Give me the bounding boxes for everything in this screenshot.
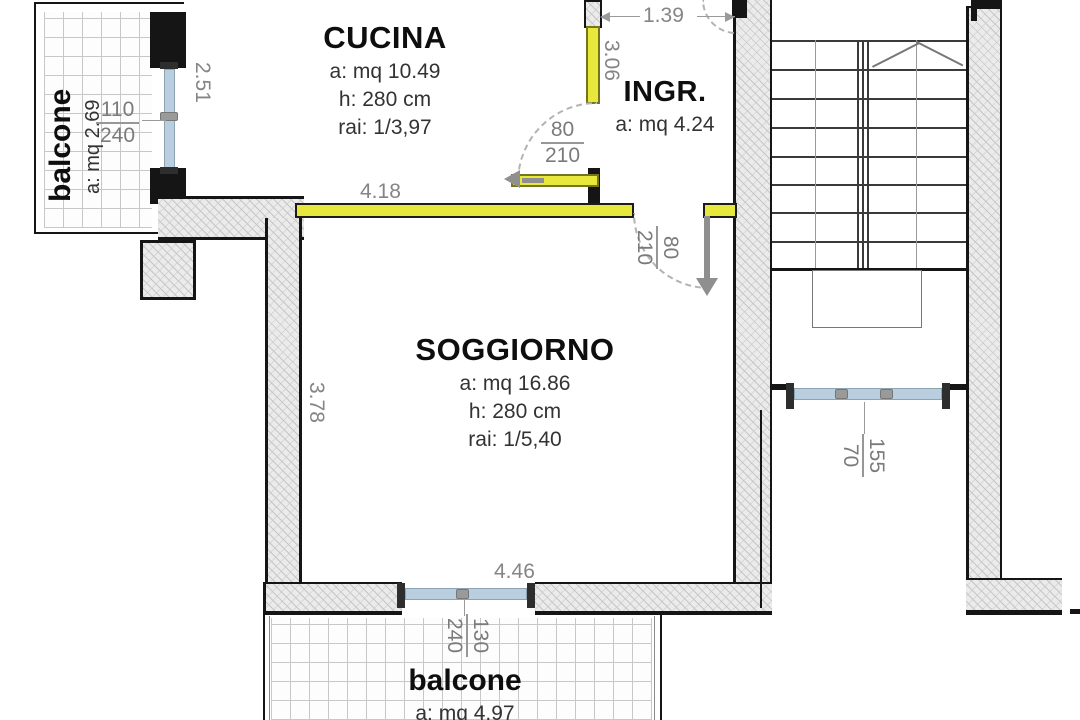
wall-stair-right-top-step (971, 9, 977, 21)
room-label-balcone-top: balcone (44, 89, 78, 202)
room-area: a: mq 4.24 (580, 113, 750, 137)
room-title: CUCINA (275, 20, 495, 56)
room-label-ingresso: INGR. a: mq 4.24 (580, 76, 750, 137)
stair-tread (772, 212, 966, 214)
leader-balcony-window (142, 120, 166, 121)
dim-entry-wall: 3.06 (599, 40, 623, 81)
stair-divider-line (867, 40, 869, 268)
stair-tread (772, 156, 966, 158)
stair-window-cap-right (942, 383, 950, 409)
wall-living-left (265, 218, 302, 584)
room-label-balcone-bottom: balcone (390, 664, 540, 698)
stair-tread (772, 69, 966, 71)
dim-living-window: 130240 (443, 614, 492, 657)
wall-kitchen-living-yellow (295, 203, 634, 218)
dim-kitchen-left: 2.51 (190, 62, 214, 103)
stair-tread (772, 241, 966, 243)
stair-flight-centerline (916, 40, 917, 268)
stair-divider-line (857, 40, 859, 268)
stair-tread (772, 127, 966, 129)
room-area-balcone-bottom: a: mq 4.97 (390, 702, 540, 720)
room-area: a: mq 16.86 (390, 372, 640, 396)
dim-arrow-left (600, 12, 610, 22)
dim-arrow-right (725, 12, 735, 22)
stair-window-cap-left (786, 383, 794, 409)
stair-break-line (916, 41, 963, 66)
room-label-soggiorno: SOGGIORNO a: mq 16.86 h: 280 cm rai: 1/5… (390, 332, 640, 452)
balcony-bottom-inner-line-left (269, 616, 270, 720)
kitchen-door-arrow-head (504, 170, 520, 188)
dim-kitchen-bottom-wall: 4.18 (360, 180, 401, 204)
dim-kitchen-door: 80210 (541, 118, 584, 167)
room-title: INGR. (580, 76, 750, 109)
room-rai: rai: 1/3,97 (275, 116, 495, 140)
stair-window-mark (880, 389, 893, 399)
stair-landing-window (794, 388, 942, 400)
wall-living-bottom-right (535, 582, 772, 615)
living-door-arrow-shaft (704, 216, 710, 280)
room-label-cucina: CUCINA a: mq 10.49 h: 280 cm rai: 1/3,97 (275, 20, 495, 140)
dim-entry-width: 1.39 (643, 4, 684, 28)
wall-corner-pillar (140, 240, 196, 300)
living-window-cap-left (397, 583, 405, 608)
wall-stair-right (966, 6, 1002, 584)
living-window-cap-right (527, 583, 535, 608)
wall-living-bottom-left (263, 582, 402, 615)
dim-living-window-wall: 4.46 (494, 560, 535, 584)
floor-plan-canvas: CUCINA a: mq 10.49 h: 280 cm rai: 1/3,97… (0, 0, 1080, 720)
living-window-mark (456, 589, 469, 599)
wall-bottom-right-foot (966, 578, 1062, 615)
kitchen-door-arrow-shaft (522, 178, 544, 183)
leader-stair-window (864, 402, 865, 434)
stair-shaft-wall-line (760, 410, 768, 608)
room-height: h: 280 cm (275, 88, 495, 112)
wall-balcony-top-block (150, 12, 186, 68)
stair-tread (772, 98, 966, 100)
room-height: h: 280 cm (390, 400, 640, 424)
stair-window-mark (835, 389, 848, 399)
room-area: a: mq 10.49 (275, 60, 495, 84)
stair-window-stub-right (950, 384, 966, 390)
room-rai: rai: 1/5,40 (390, 428, 640, 452)
stair-tread (772, 184, 966, 186)
wall-bottom-right-dash (1070, 609, 1080, 614)
room-title: SOGGIORNO (390, 332, 640, 368)
stair-divider-line (862, 40, 864, 268)
window-balcony-cap-bottom (160, 167, 178, 174)
wall-stair-right-top-notch (971, 0, 1002, 9)
living-door-arrow-head (696, 278, 718, 296)
stair-break-line (872, 42, 919, 67)
dim-stair-window: 15570 (839, 434, 888, 477)
stair-opening-outline (812, 270, 922, 328)
dim-living-door: 80210 (633, 226, 682, 269)
balcony-bottom-inner-line-right (654, 616, 655, 720)
stair-tread (772, 40, 966, 42)
dim-balcony-window: 110240 (96, 98, 139, 147)
stair-flight-centerline (815, 40, 816, 268)
window-balcony-cap-top (160, 62, 178, 69)
dim-living-left: 3.78 (304, 382, 328, 423)
